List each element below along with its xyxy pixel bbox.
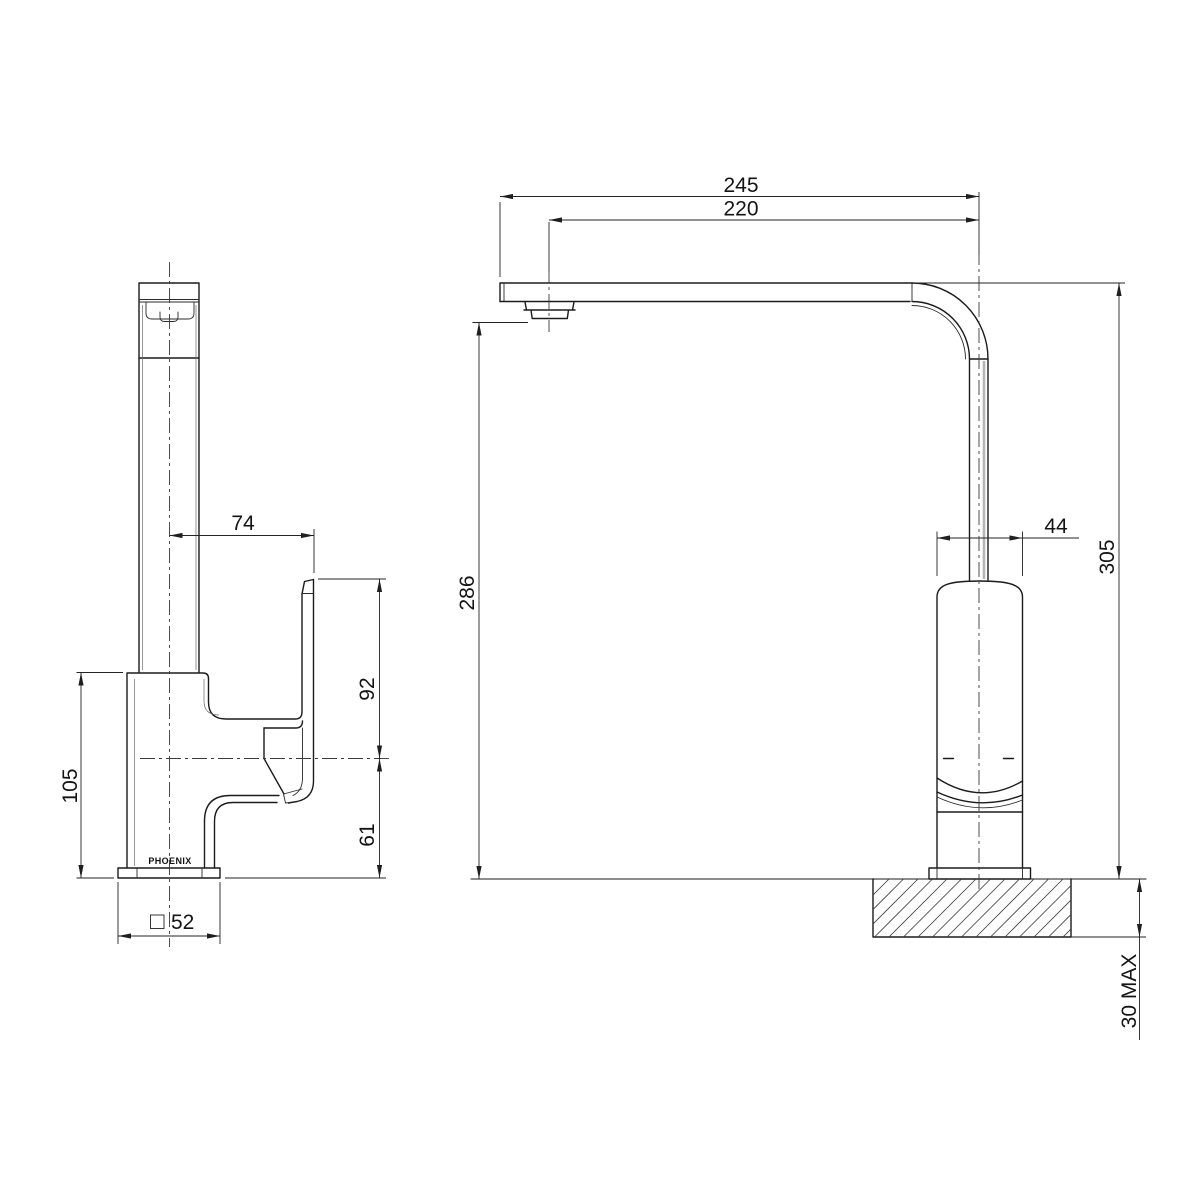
side-step-highlight <box>204 679 219 715</box>
dim-body-width: 44 <box>937 515 1079 576</box>
front-body <box>929 581 1031 879</box>
front-spout-arm <box>500 283 988 580</box>
side-handle-blade <box>289 580 314 804</box>
side-handle-arm-underside <box>264 721 303 728</box>
side-handle-inner-edge <box>293 728 303 796</box>
front-spout-top <box>500 283 912 302</box>
brand-logo: PHOENIX <box>148 856 191 866</box>
dim-outlet-clearance: 286 <box>456 323 528 880</box>
side-body-and-handle <box>127 580 314 869</box>
side-aerator-tab <box>160 312 178 322</box>
front-body-outline <box>937 581 1023 868</box>
side-view: PHOENIX 74 105 92 <box>59 262 389 947</box>
front-corner-inner <box>912 302 970 360</box>
faucet-dimension-drawing: PHOENIX 74 105 92 <box>0 0 1200 1200</box>
bench-block <box>873 879 1071 937</box>
dim-outlet-reach: 220 <box>549 198 979 223</box>
benchtop-section <box>471 879 1146 937</box>
front-handle-curve-1 <box>937 778 1023 793</box>
dim-label-61: 61 <box>356 823 379 846</box>
dim-label-92: 92 <box>356 677 379 700</box>
front-centerlines <box>500 192 979 890</box>
dim-label-220: 220 <box>723 198 758 221</box>
side-centerlines <box>140 262 389 947</box>
dim-overall-height: 305 <box>913 283 1125 879</box>
dim-body-height: 105 <box>59 673 123 879</box>
side-spout-head-detail <box>146 302 194 319</box>
technical-drawing-page: PHOENIX 74 105 92 <box>0 0 1200 1200</box>
dim-label-44: 44 <box>1044 515 1068 538</box>
side-flange <box>118 868 220 878</box>
front-corner-inner-highlight <box>912 306 966 360</box>
square-section-symbol <box>151 915 165 929</box>
front-handle-curve-2 <box>937 792 1023 803</box>
side-base-flange <box>118 868 220 878</box>
dim-label-74: 74 <box>231 512 255 535</box>
side-body-chamfer <box>264 728 284 794</box>
dim-centerline-to-base: 61 <box>225 759 386 879</box>
side-cap-bottom-lines <box>139 300 199 303</box>
front-view: 245 220 286 44 305 <box>456 174 1146 1040</box>
dim-label-245: 245 <box>723 174 758 197</box>
side-lower-elbow-outer <box>205 796 280 869</box>
bench-hatch <box>817 879 1122 937</box>
dim-label-286: 286 <box>456 575 479 610</box>
side-column-outline <box>139 283 199 672</box>
dim-base-width: 52 <box>118 882 220 944</box>
side-spout-column <box>139 283 199 672</box>
dim-handle-to-centerline: 92 <box>318 579 386 759</box>
front-flange <box>929 868 1031 879</box>
dim-max-mounting-thickness: 30 MAX <box>1118 879 1142 1040</box>
dim-spout-to-handle: 74 <box>170 512 315 573</box>
side-lower-elbow-inner <box>215 803 278 869</box>
dim-overall-reach: 245 <box>500 174 979 199</box>
dim-label-30-max: 30 MAX <box>1118 954 1141 1029</box>
front-flange-ticks <box>937 868 1023 879</box>
front-aerator <box>524 302 575 319</box>
dim-label-105: 105 <box>59 768 82 803</box>
dim-label-305: 305 <box>1096 539 1119 574</box>
dim-label-52: 52 <box>171 911 194 934</box>
